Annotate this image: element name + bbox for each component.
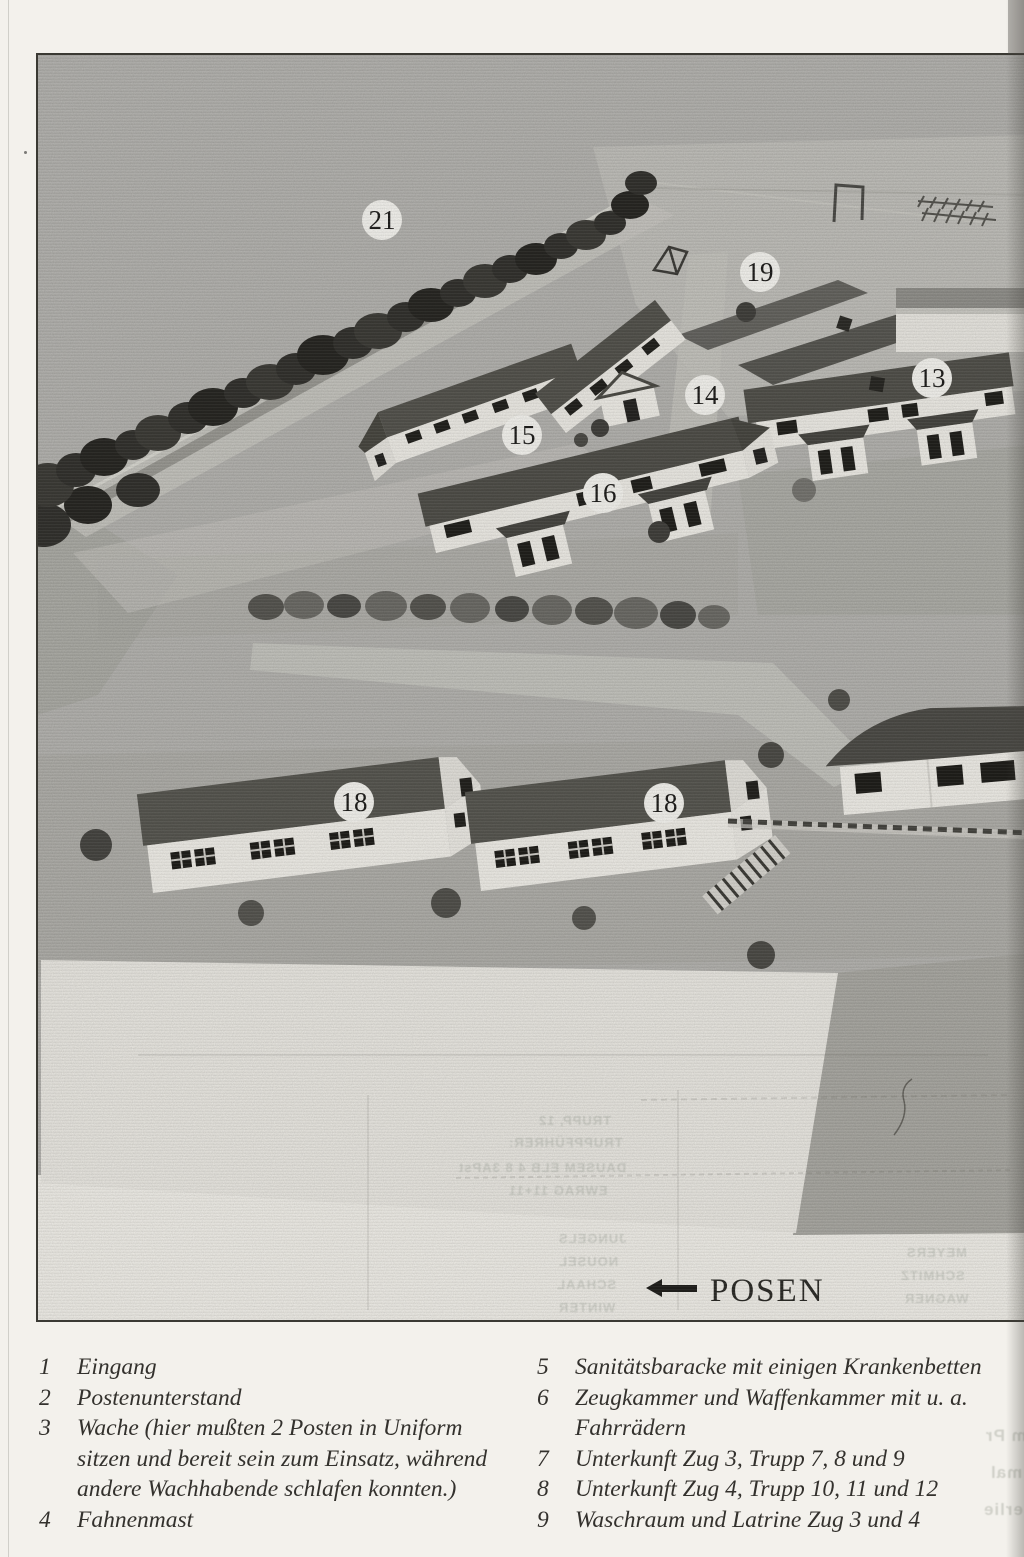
legend-column-left: 1 Eingang 2 Postenunterstand 3 Wache (hi… — [39, 1352, 497, 1535]
ghost-text: WAGNER — [904, 1291, 969, 1306]
legend-item-2: 2 Postenunterstand — [39, 1383, 497, 1414]
ghost-text: TRUPP, 12 — [538, 1113, 611, 1128]
legend-item-8: 8 Unterkunft Zug 4, Trupp 10, 11 und 12 — [537, 1474, 1023, 1505]
legend-number: 2 — [39, 1383, 77, 1414]
legend-number: 9 — [537, 1505, 575, 1536]
legend-number: 4 — [39, 1505, 77, 1536]
page-edge-line — [8, 0, 9, 1557]
ghost-text: JUNGELS — [558, 1231, 626, 1246]
book-page: 21 19 13 14 15 16 18 18 POSEN TRUPP, 12 … — [0, 0, 1024, 1557]
legend-column-right: 5 Sanitätsbaracke mit einigen Krankenbet… — [537, 1352, 1023, 1535]
legend-number: 5 — [537, 1352, 575, 1383]
scan-grain — [38, 55, 1024, 1322]
legend-text: Fahnenmast — [77, 1505, 497, 1536]
ghost-text: WINTER — [558, 1300, 615, 1315]
ghost-text: mal — [990, 1463, 1022, 1483]
ghost-text: Im Pr — [985, 1426, 1024, 1446]
legend-item-7: 7 Unterkunft Zug 3, Trupp 7, 8 und 9 — [537, 1444, 1023, 1475]
legend-text: Postenunterstand — [77, 1383, 497, 1414]
legend-text: Zeugkammer und Waffenkammer mit u. a. Fa… — [575, 1383, 1023, 1444]
legend-item-9: 9 Waschraum und Latrine Zug 3 und 4 — [537, 1505, 1023, 1536]
camp-illustration: 21 19 13 14 15 16 18 18 POSEN — [38, 55, 1024, 1322]
legend-item-6: 6 Zeugkammer und Waffenkammer mit u. a. … — [537, 1383, 1023, 1444]
legend-item-5: 5 Sanitätsbaracke mit einigen Krankenbet… — [537, 1352, 1023, 1383]
legend-text: Unterkunft Zug 3, Trupp 7, 8 und 9 — [575, 1444, 1023, 1475]
ghost-text: TRUPPFÜHRER: — [508, 1135, 623, 1150]
legend-number: 7 — [537, 1444, 575, 1475]
legend-number: 6 — [537, 1383, 575, 1444]
ghost-text: nerlie — [983, 1500, 1024, 1520]
ghost-text: DAUSEM ELB 4 8 3APst — [458, 1160, 626, 1175]
ghost-text: MEYERS — [906, 1245, 967, 1260]
legend-number: 3 — [39, 1413, 77, 1505]
ghost-text: NOUSEL — [558, 1254, 618, 1269]
page-gutter-shadow-top — [1008, 0, 1024, 54]
legend-text: Eingang — [77, 1352, 497, 1383]
ghost-text: SCHMITZ — [900, 1268, 965, 1283]
ghost-text: EWRAG 11+11 — [508, 1183, 608, 1198]
legend-item-3: 3 Wache (hier mußten 2 Posten in Uniform… — [39, 1413, 497, 1505]
legend-number: 8 — [537, 1474, 575, 1505]
legend-text: Waschraum und Latrine Zug 3 und 4 — [575, 1505, 1023, 1536]
legend-text: Unterkunft Zug 4, Trupp 10, 11 und 12 — [575, 1474, 1023, 1505]
legend-item-4: 4 Fahnenmast — [39, 1505, 497, 1536]
scan-speck — [24, 151, 27, 154]
camp-illustration-frame: 21 19 13 14 15 16 18 18 POSEN TRUPP, 12 … — [36, 53, 1024, 1322]
ghost-text: SCHAAL — [556, 1277, 616, 1292]
legend-text: Wache (hier mußten 2 Posten in Uniform s… — [77, 1413, 497, 1505]
legend-number: 1 — [39, 1352, 77, 1383]
legend-item-1: 1 Eingang — [39, 1352, 497, 1383]
legend-text: Sanitätsbaracke mit einigen Krankenbette… — [575, 1352, 1023, 1383]
